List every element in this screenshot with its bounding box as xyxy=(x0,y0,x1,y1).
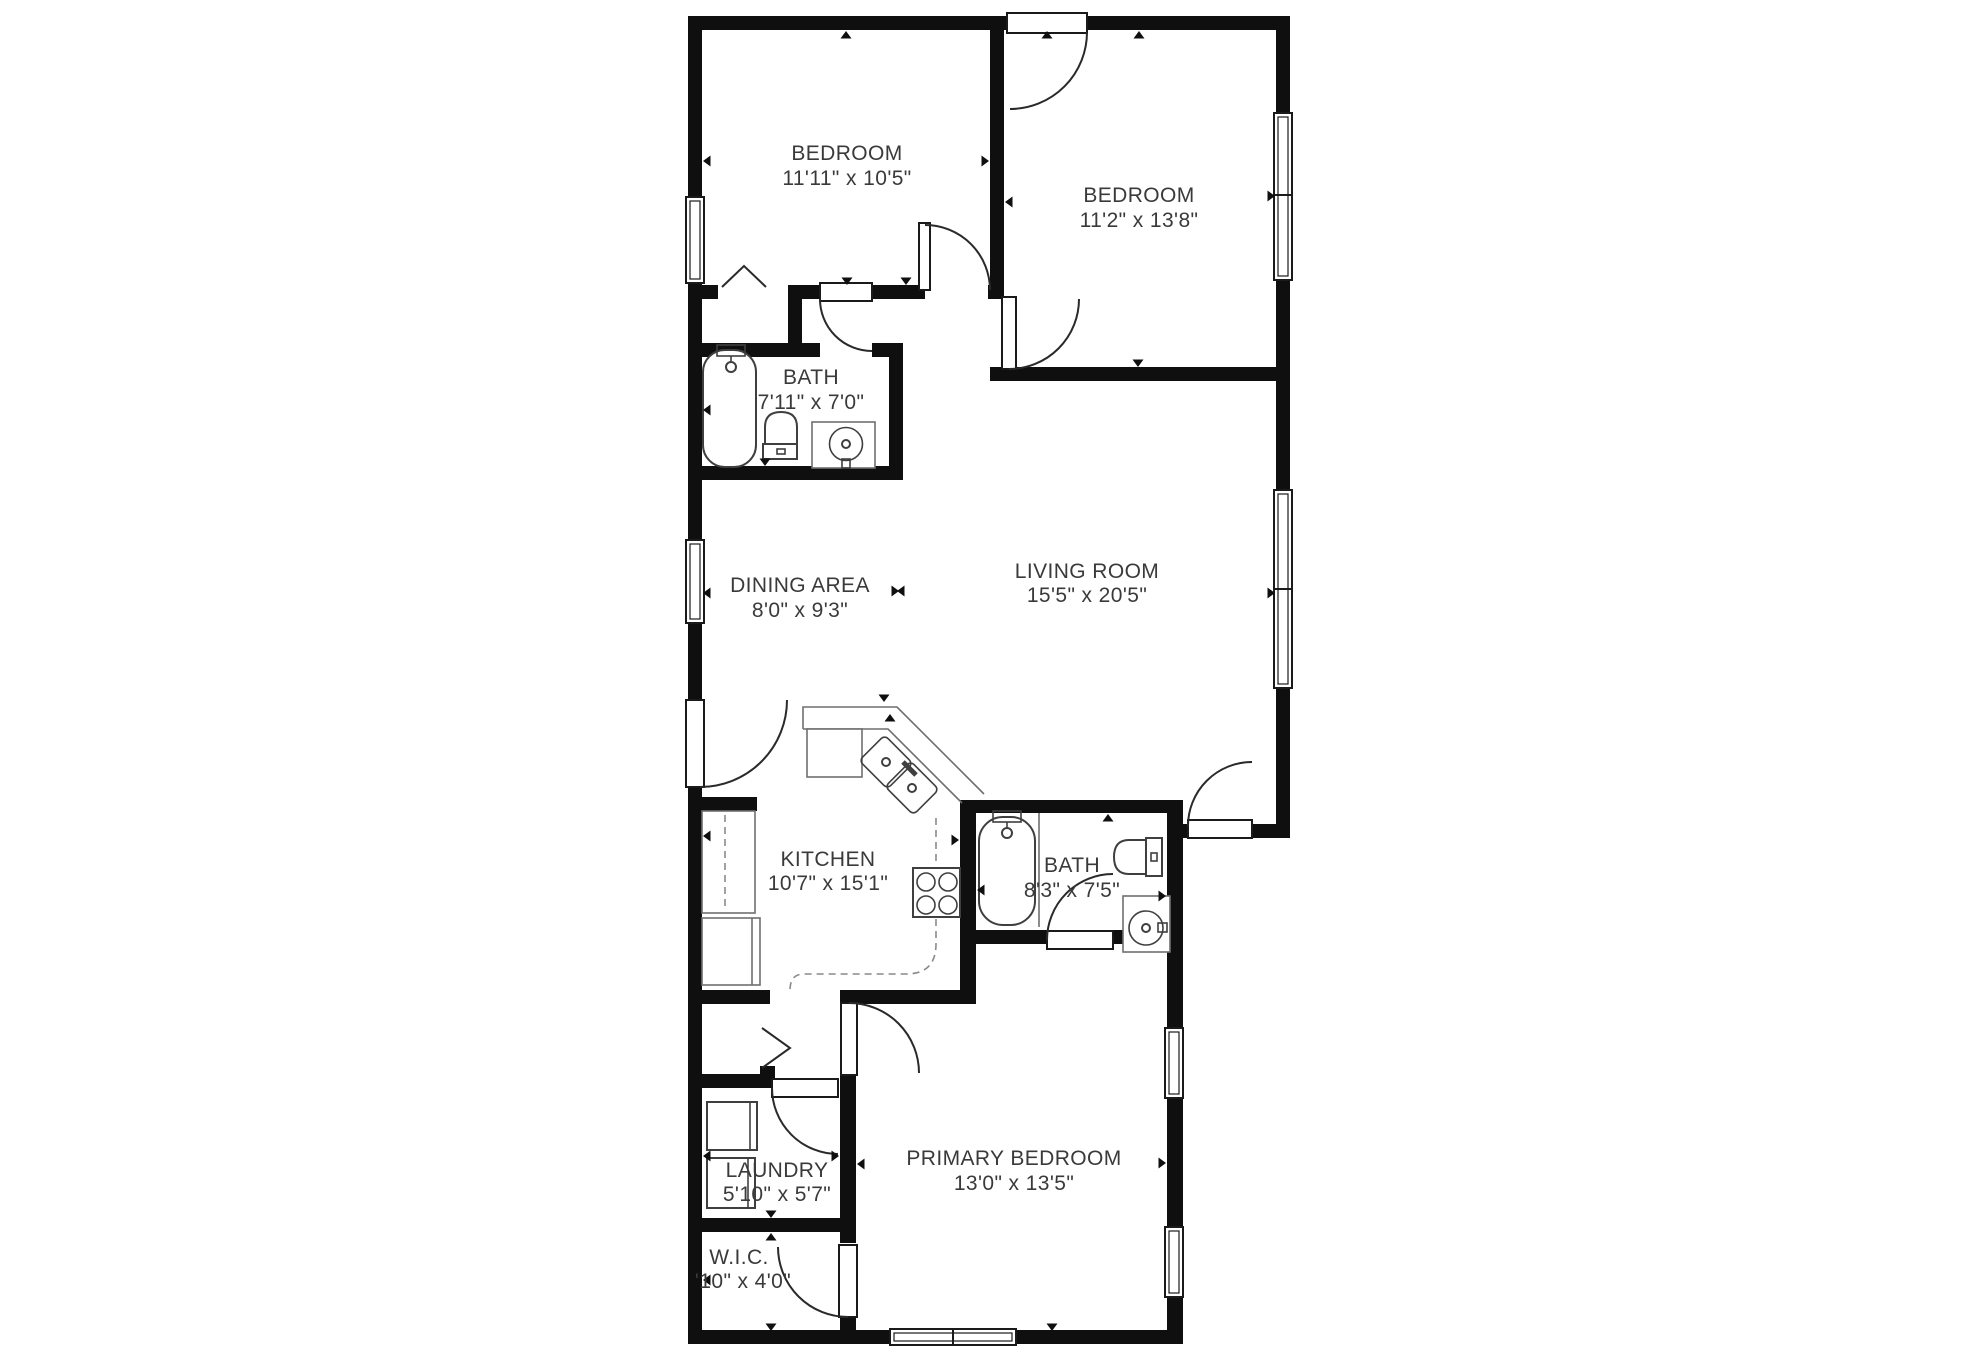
door-bath1 xyxy=(820,283,872,351)
wall xyxy=(840,990,976,1004)
wall xyxy=(990,16,1004,299)
window xyxy=(1274,113,1292,280)
wall xyxy=(688,16,702,197)
marker xyxy=(857,1159,865,1170)
room-name: DINING AREA xyxy=(730,574,870,597)
room-dims: 8'0" x 9'3" xyxy=(752,599,848,622)
room-name: BEDROOM xyxy=(1083,184,1194,207)
wall xyxy=(688,1074,772,1088)
wall xyxy=(990,367,1276,381)
wall xyxy=(688,797,757,811)
wall xyxy=(688,343,820,357)
wall xyxy=(889,343,903,480)
room-name: KITCHEN xyxy=(781,848,876,871)
sink-vanity-icon xyxy=(1123,896,1170,952)
floor-plan-drawing: BEDROOM 11'11" x 10'5" BEDROOM 11'2" x 1… xyxy=(0,0,1964,1365)
room-dims: 8'3" x 7'5" xyxy=(1024,879,1120,902)
wall xyxy=(688,623,702,700)
wall xyxy=(688,16,1007,30)
marker xyxy=(1103,814,1114,822)
room-label-bedroom-2: BEDROOM 11'2" x 13'8" xyxy=(1080,184,1199,232)
wall xyxy=(1167,1098,1183,1227)
wall xyxy=(960,930,1047,944)
room-name: PRIMARY BEDROOM xyxy=(906,1147,1121,1170)
room-dims: '10" x 4'0" xyxy=(695,1270,791,1293)
door-bedroom1 xyxy=(919,223,990,290)
kitchen-sink-icon xyxy=(859,735,939,815)
marker xyxy=(841,31,852,39)
door-bedroom2-top xyxy=(1007,13,1087,109)
wall xyxy=(960,800,976,1004)
toilet-icon xyxy=(763,412,797,459)
marker xyxy=(901,278,912,286)
room-label-laundry: LAUNDRY 5'10" x 5'7" xyxy=(723,1159,831,1206)
counter-cabinet xyxy=(807,729,862,777)
wall xyxy=(688,285,718,299)
window xyxy=(1165,1028,1183,1098)
marker xyxy=(703,156,711,167)
marker xyxy=(832,1151,840,1162)
room-label-bedroom-1: BEDROOM 11'11" x 10'5" xyxy=(782,142,911,190)
room-name: LIVING ROOM xyxy=(1015,560,1159,583)
stove-icon xyxy=(913,868,960,917)
room-dims: 13'0" x 13'5" xyxy=(954,1172,1074,1195)
wall xyxy=(1276,688,1290,838)
room-name: W.I.C. xyxy=(709,1246,769,1269)
room-label-wic: W.I.C. '10" x 4'0" xyxy=(695,1246,791,1293)
toilet-icon xyxy=(1114,838,1162,876)
room-name: BATH xyxy=(783,366,839,389)
wall xyxy=(688,787,702,1344)
wall xyxy=(1276,280,1290,490)
sink-vanity-icon xyxy=(812,422,875,468)
marker xyxy=(1134,31,1145,39)
door-laundry xyxy=(772,1079,838,1154)
room-name: BATH xyxy=(1044,854,1100,877)
marker xyxy=(1047,1324,1058,1332)
door-primary-bedroom xyxy=(841,1003,919,1075)
bathtub-icon xyxy=(703,345,756,467)
marker xyxy=(982,156,990,167)
room-labels: BEDROOM 11'11" x 10'5" BEDROOM 11'2" x 1… xyxy=(695,142,1199,1293)
room-label-bath-1: BATH 7'11" x 7'0" xyxy=(758,366,865,414)
wall xyxy=(840,1075,856,1243)
washer-icon xyxy=(707,1102,757,1150)
wall xyxy=(1087,16,1290,30)
closet-bifold-hall xyxy=(762,1028,790,1068)
room-label-kitchen: KITCHEN 10'7" x 15'1" xyxy=(768,848,888,895)
counter-left xyxy=(702,811,755,913)
window xyxy=(1274,490,1292,688)
door-entry xyxy=(686,700,787,787)
wall xyxy=(688,283,702,540)
wall xyxy=(688,1218,840,1232)
window xyxy=(890,1329,1016,1345)
marker xyxy=(892,586,900,597)
closet-bifold-bedroom1 xyxy=(722,266,766,287)
window xyxy=(686,197,704,283)
wall xyxy=(688,990,770,1004)
room-dims: 11'2" x 13'8" xyxy=(1080,209,1199,232)
door-bedroom2-side xyxy=(1002,297,1079,369)
walls xyxy=(688,16,1290,1344)
room-label-primary: PRIMARY BEDROOM 13'0" x 13'5" xyxy=(906,1147,1121,1195)
room-label-living: LIVING ROOM 15'5" x 20'5" xyxy=(1015,560,1159,607)
room-name: BEDROOM xyxy=(791,142,902,165)
upper-cabinet-dashed xyxy=(790,919,936,990)
wall xyxy=(1016,1330,1183,1344)
window xyxy=(686,540,704,623)
marker xyxy=(1159,1158,1167,1169)
bathtub-icon xyxy=(979,811,1039,927)
window xyxy=(1165,1227,1183,1297)
room-name: LAUNDRY xyxy=(726,1159,829,1182)
door-back-exterior xyxy=(1188,762,1252,838)
marker xyxy=(885,714,896,722)
marker xyxy=(1133,360,1144,368)
room-dims: 7'11" x 7'0" xyxy=(758,391,865,414)
marker xyxy=(766,1211,777,1219)
room-dims: 5'10" x 5'7" xyxy=(723,1183,831,1206)
marker xyxy=(1005,197,1013,208)
wall xyxy=(1252,824,1290,838)
room-dims: 10'7" x 15'1" xyxy=(768,872,888,895)
room-dims: 11'11" x 10'5" xyxy=(782,167,911,190)
marker xyxy=(766,1324,777,1332)
marker xyxy=(766,1233,777,1241)
wall xyxy=(1276,16,1290,113)
floor-plan-page: BEDROOM 11'11" x 10'5" BEDROOM 11'2" x 1… xyxy=(0,0,1964,1365)
wall xyxy=(688,1330,890,1344)
marker xyxy=(879,695,890,703)
room-dims: 15'5" x 20'5" xyxy=(1027,584,1147,607)
marker xyxy=(952,835,960,846)
room-label-dining: DINING AREA 8'0" x 9'3" xyxy=(730,574,870,622)
marker xyxy=(760,459,771,467)
